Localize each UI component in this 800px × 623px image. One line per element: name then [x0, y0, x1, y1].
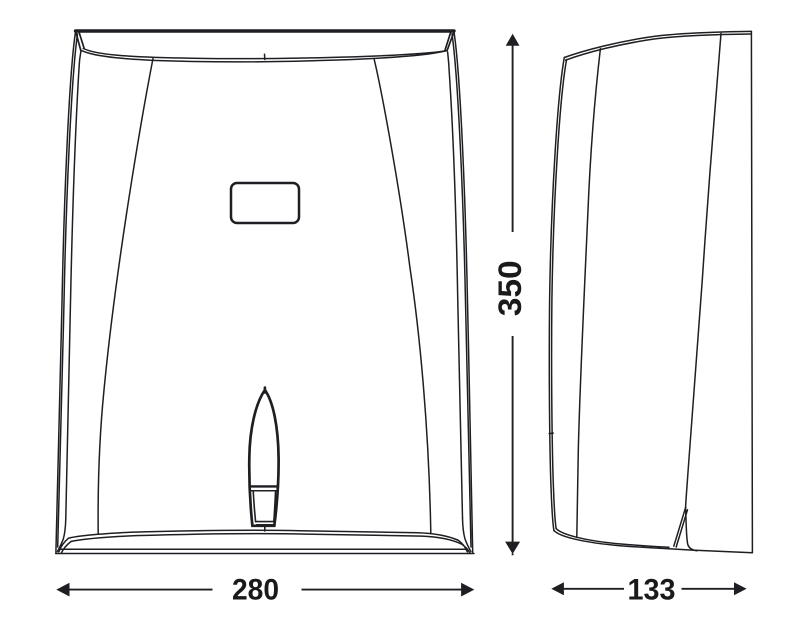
svg-text:280: 280	[232, 574, 279, 607]
svg-text:350: 350	[492, 260, 528, 316]
svg-text:133: 133	[628, 574, 676, 607]
